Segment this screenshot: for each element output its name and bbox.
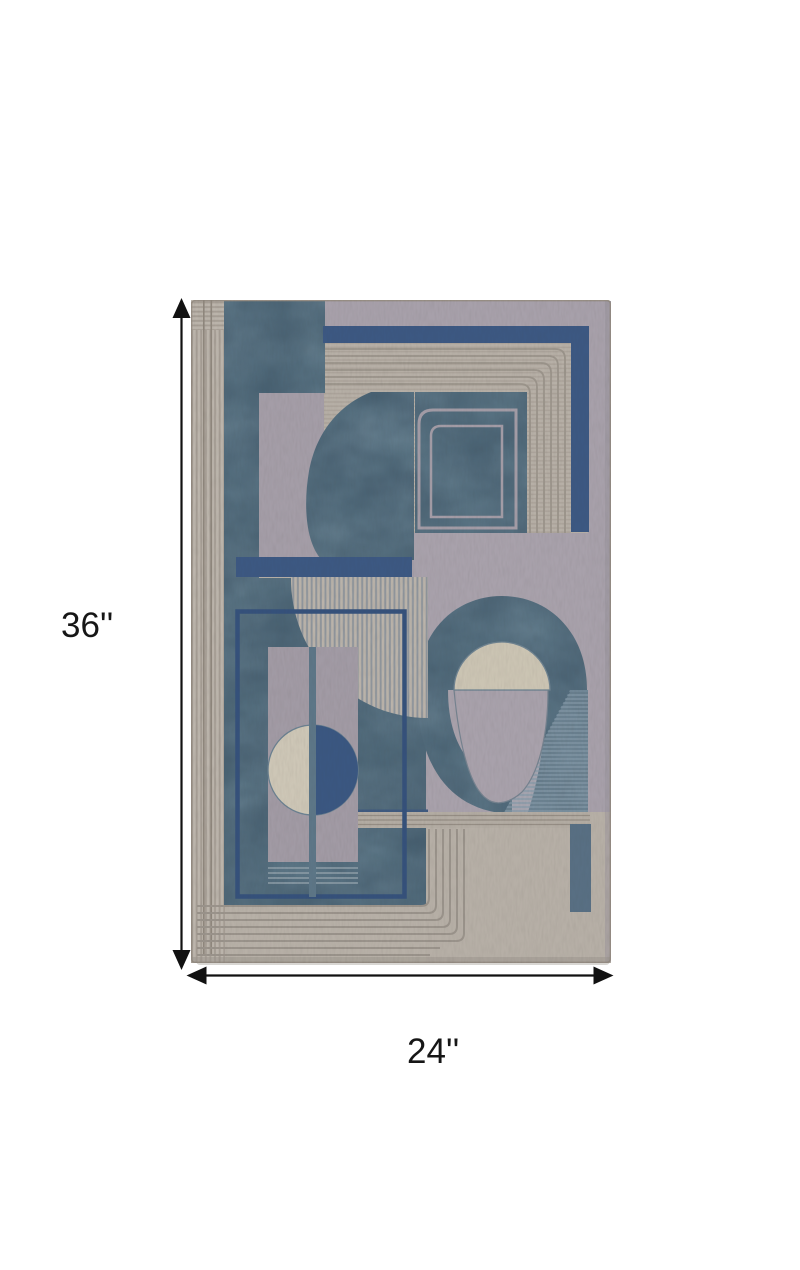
svg-text:36'': 36'' [61, 606, 113, 645]
svg-text:24'': 24'' [407, 1032, 459, 1071]
